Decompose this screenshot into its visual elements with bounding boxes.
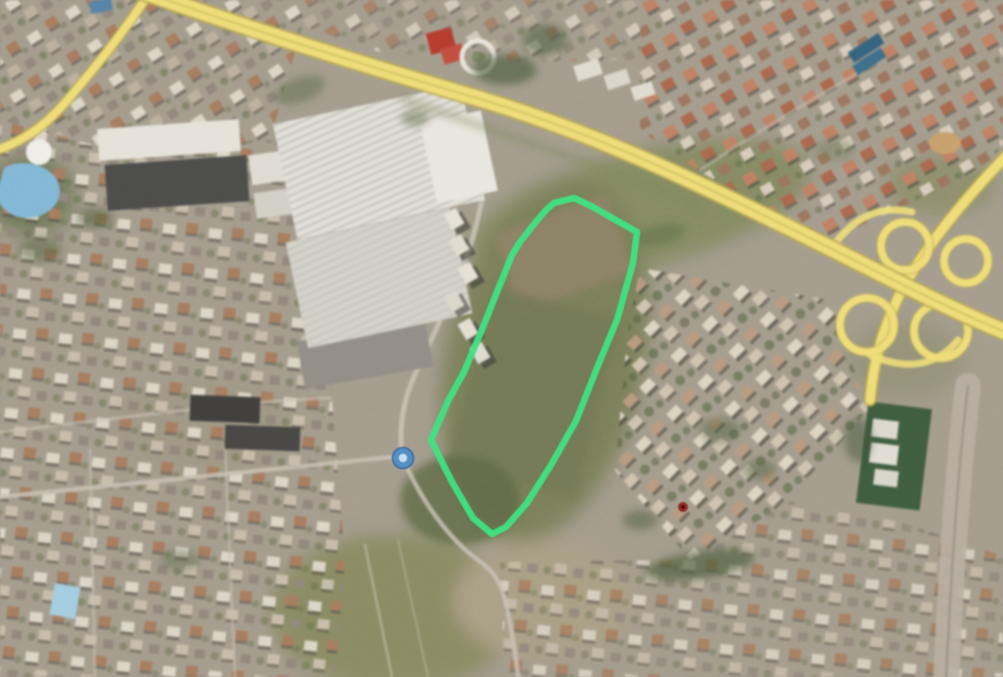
map-canvas[interactable]	[0, 0, 1003, 677]
red-dot-marker[interactable]	[678, 502, 688, 512]
location-marker[interactable]	[393, 448, 414, 469]
satellite-imagery	[0, 0, 1003, 677]
noise-overlay	[0, 0, 1003, 677]
satellite-map	[0, 0, 1003, 677]
location-marker-inner	[399, 454, 407, 462]
